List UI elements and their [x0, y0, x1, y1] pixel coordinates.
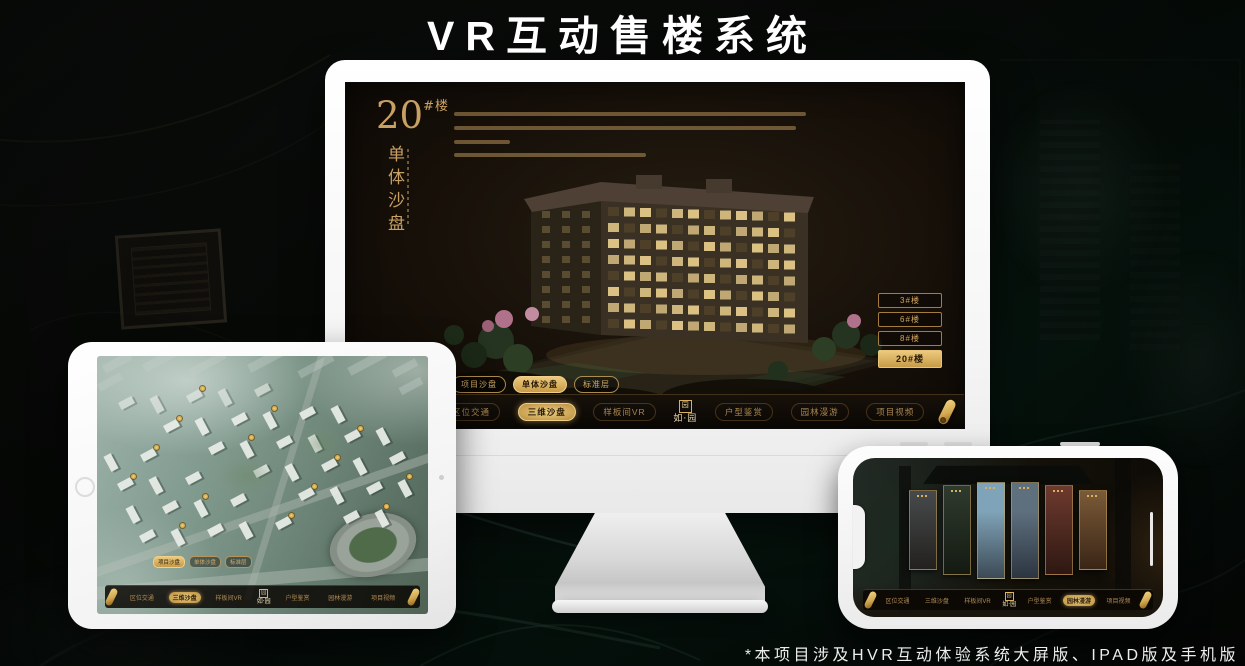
brand-logo: 园 如·园: [1002, 592, 1016, 608]
phone-screen: 区位交通 三维沙盘 样板间VR 园 如·园 户型鉴赏 园林漫游 项目视频: [853, 458, 1163, 617]
nav-item-showroom-vr[interactable]: 样板间VR: [593, 403, 655, 421]
background-plaque-photo: [115, 228, 227, 329]
scene-card[interactable]: [977, 482, 1005, 579]
tab-standard-floor[interactable]: 标准层: [225, 556, 252, 568]
tablet-home-button[interactable]: [75, 477, 95, 497]
scene-card[interactable]: [909, 490, 937, 570]
intro-text-line: [454, 112, 806, 116]
floor-button-6[interactable]: 6#楼: [878, 312, 942, 327]
nav-item-unit-gallery[interactable]: 户型鉴赏: [715, 403, 773, 421]
nav-item-location[interactable]: 区位交通: [126, 592, 158, 603]
brand-seal-icon: 园: [1005, 592, 1014, 601]
brand-logo-text: 如·园: [673, 415, 697, 424]
block-number-suffix: #楼: [423, 99, 449, 114]
nav-item-showroom-vr[interactable]: 样板间VR: [212, 592, 246, 603]
background-building-photo2: [1130, 160, 1180, 350]
tab-standard-floor[interactable]: 标准层: [574, 376, 619, 393]
nav-item-location[interactable]: 区位交通: [881, 595, 913, 606]
intro-text-line: [454, 140, 510, 144]
tablet-camera-icon: [439, 475, 444, 480]
nav-item-project-video[interactable]: 项目视频: [866, 403, 924, 421]
background-building-photo: [1040, 120, 1100, 340]
scene-card[interactable]: [1079, 490, 1107, 570]
scroll-icon[interactable]: [104, 587, 118, 606]
tablet-bottom-nav: 区位交通 三维沙盘 样板间VR 园 如·园 户型鉴赏 园林漫游 项目视频: [105, 585, 420, 608]
scene-card[interactable]: [1011, 482, 1039, 579]
nav-item-3d-sandbox[interactable]: 三维沙盘: [921, 595, 953, 606]
tablet-sandbox-tabs: 项目沙盘 单体沙盘 标准层: [153, 556, 252, 568]
brand-seal-icon: 园: [259, 589, 268, 598]
section-title-vertical: 单体沙盘: [382, 145, 407, 237]
scroll-icon[interactable]: [937, 398, 957, 426]
section-subtitle-en-decor: [407, 149, 409, 225]
floor-button-8[interactable]: 8#楼: [878, 331, 942, 346]
aerial-buildings: [97, 356, 428, 614]
tab-single-sandbox[interactable]: 单体沙盘: [189, 556, 221, 568]
nav-item-garden-tour[interactable]: 园林漫游: [324, 592, 356, 603]
nav-item-3d-sandbox[interactable]: 三维沙盘: [518, 403, 576, 421]
monitor-stand-base: [552, 600, 768, 613]
scene-card[interactable]: [1045, 485, 1073, 575]
nav-item-showroom-vr[interactable]: 样板间VR: [960, 595, 994, 606]
floor-selector: 3#楼 6#楼 8#楼 20#楼: [878, 293, 942, 368]
nav-item-project-video[interactable]: 项目视频: [367, 592, 399, 603]
nav-item-unit-gallery[interactable]: 户型鉴赏: [1024, 595, 1056, 606]
nav-item-3d-sandbox[interactable]: 三维沙盘: [169, 592, 201, 603]
scene-scroll-gallery: [909, 480, 1107, 580]
floor-button-3[interactable]: 3#楼: [878, 293, 942, 308]
nav-item-unit-gallery[interactable]: 户型鉴赏: [281, 592, 313, 603]
sandbox-tabs: 项目沙盘 单体沙盘 标准层: [452, 376, 619, 393]
scene-card[interactable]: [943, 485, 971, 575]
phone-notch: [853, 505, 865, 569]
brand-logo: 园 如·园: [673, 400, 697, 424]
intro-text-line: [454, 153, 646, 157]
tab-project-sandbox[interactable]: 项目沙盘: [452, 376, 506, 393]
scroll-icon[interactable]: [1138, 590, 1152, 609]
tab-single-sandbox[interactable]: 单体沙盘: [513, 376, 567, 393]
page-title: VR互动售楼系统: [0, 2, 1245, 62]
tab-project-sandbox[interactable]: 项目沙盘: [153, 556, 185, 568]
nav-item-garden-tour[interactable]: 园林漫游: [1063, 595, 1095, 606]
footnote-text: *本项目涉及HVR互动体验系统大屏版、IPAD版及手机版: [745, 641, 1239, 665]
block-number: 20: [376, 94, 423, 137]
nav-item-garden-tour[interactable]: 园林漫游: [791, 403, 849, 421]
brand-seal-icon: 园: [679, 400, 692, 413]
tablet-screen: 项目沙盘 单体沙盘 标准层 区位交通 三维沙盘 样板间VR 园 如·园 户型鉴赏…: [97, 356, 428, 614]
scroll-icon[interactable]: [863, 590, 877, 609]
brand-logo-text: 如·园: [257, 599, 271, 605]
intro-text-line: [454, 126, 796, 130]
floor-button-20[interactable]: 20#楼: [878, 350, 942, 368]
phone-home-indicator[interactable]: [1150, 512, 1153, 566]
nav-item-project-video[interactable]: 项目视频: [1103, 595, 1135, 606]
scroll-icon[interactable]: [406, 587, 420, 606]
brand-logo-text: 如·园: [1002, 602, 1016, 608]
brand-logo: 园 如·园: [257, 589, 271, 605]
phone-bottom-nav: 区位交通 三维沙盘 样板间VR 园 如·园 户型鉴赏 园林漫游 项目视频: [863, 589, 1153, 610]
block-number-heading: 20#楼: [376, 97, 449, 134]
poster-stage: VR互动售楼系统: [0, 0, 1245, 666]
